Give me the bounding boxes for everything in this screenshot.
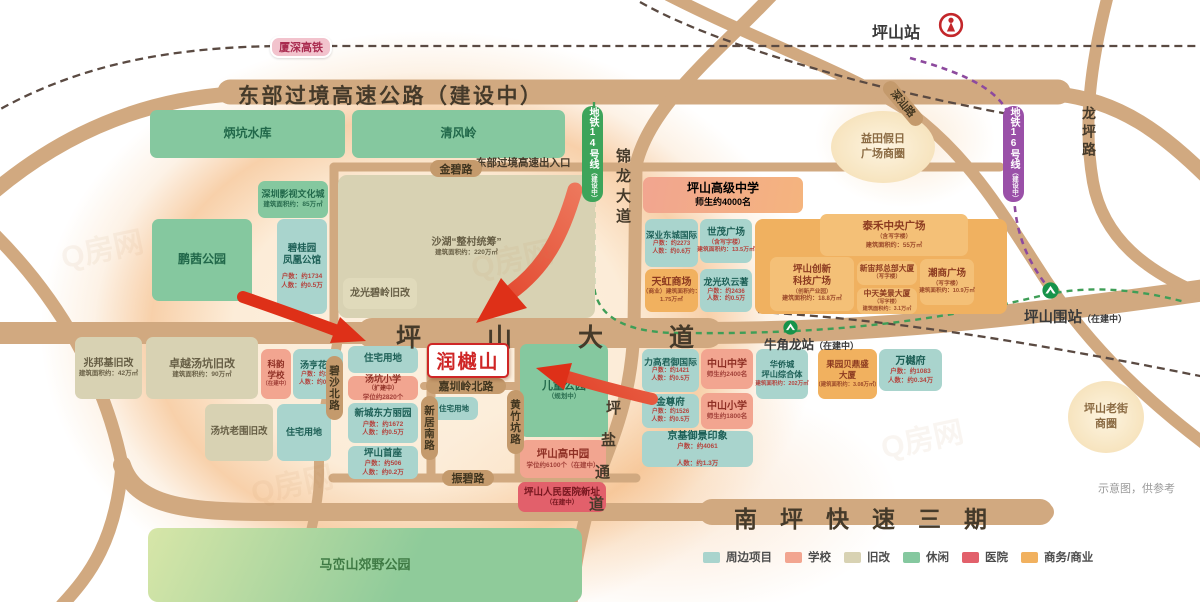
metro14-name: 地铁14号线: [585, 107, 600, 169]
label-pingyan-char-4: 道: [589, 493, 604, 514]
legend-item-hospital: 医院: [962, 549, 1008, 565]
niujiaolong-status: （在建中）: [814, 341, 859, 351]
project-name: 润樾山: [436, 347, 499, 374]
label-jinlong-avenue: 锦龙大道: [612, 148, 633, 228]
legend-item-surrounding: 周边项目: [703, 549, 772, 565]
metro-station-icon-pingshanwei: [1042, 282, 1059, 299]
legend-swatch-surrounding: [703, 552, 720, 563]
label-nanping-expressway: 南坪快速三期: [734, 500, 1010, 534]
legend-swatch-business: [1021, 552, 1038, 563]
label-pingyan-char-3: 通: [595, 461, 610, 482]
legend-item-school: 学校: [785, 549, 831, 565]
label-longping-road: 龙坪路: [1079, 106, 1099, 160]
legend-item-leisure: 休闲: [903, 549, 949, 565]
legend-swatch-school: [785, 552, 802, 563]
arrow-from-east: [536, 363, 652, 399]
pingshan-station-label: 坪山站: [872, 19, 920, 43]
niujiaolong-station-label: 牛角龙站（在建中）: [764, 334, 859, 353]
legend-item-renewal: 旧改: [844, 549, 890, 565]
pingshanwei-status: （在建中）: [1082, 314, 1127, 324]
disclaimer-note: 示意图，供参考: [1098, 480, 1175, 496]
label-bisha-north-road: 碧沙北路: [326, 356, 343, 420]
railway-station-icon: [938, 12, 964, 38]
badge-metro-line-14: 地铁14号线 （建设中）: [582, 106, 603, 202]
label-pingyan-char-1: 坪: [606, 397, 621, 418]
label-highway-exit: 东部过境高速出入口: [476, 155, 571, 170]
map-legend: 周边项目 学校 旧改 休闲 医院 商务/商业: [703, 549, 1093, 565]
metro16-status: （建设中）: [1009, 169, 1019, 202]
metro14-status: （建设中）: [588, 169, 598, 202]
label-dongbu-highway: 东部过境高速公路（建设中）: [238, 80, 544, 110]
label-jiazhenling-north-road: 嘉圳岭北路: [426, 378, 506, 394]
arrow-from-north: [476, 190, 575, 323]
metro-station-icon-niujiaolong: [783, 320, 798, 335]
label-xinju-south-road: 新居南路: [421, 396, 438, 460]
badge-metro-line-16: 地铁16号线 （建设中）: [1003, 106, 1024, 202]
arrow-from-west: [243, 297, 366, 343]
legend-item-business: 商务/商业: [1021, 549, 1093, 565]
pingshanwei-station-label: 坪山围站（在建中）: [1024, 306, 1127, 327]
project-badge-runyueshan: 润樾山: [427, 343, 509, 378]
legend-swatch-leisure: [903, 552, 920, 563]
location-map: 益田假日 广场商圈 坪山老街 商圈 炳坑水库 清风岭 深圳影视文化城 建筑面积约…: [0, 0, 1200, 602]
label-huangzhukeng-road: 黄竹坑路: [507, 390, 524, 454]
legend-swatch-hospital: [962, 552, 979, 563]
metro16-name: 地铁16号线: [1006, 107, 1021, 169]
label-zhenbi-road: 振碧路: [442, 470, 494, 486]
badge-xiashen-hsr: 厦深高铁: [270, 36, 332, 58]
label-jinbi-road: 金碧路: [430, 160, 482, 177]
legend-swatch-renewal: [844, 552, 861, 563]
label-pingyan-char-2: 盐: [601, 429, 616, 450]
